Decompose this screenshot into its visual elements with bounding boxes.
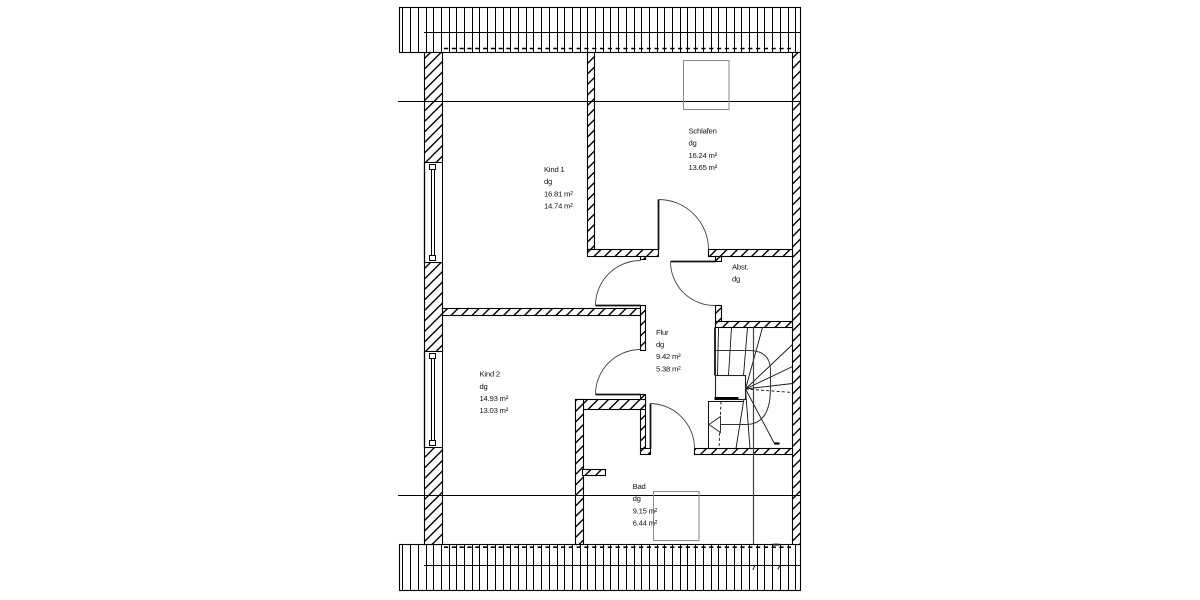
svg-text:dg: dg (689, 139, 697, 148)
svg-text:dg: dg (656, 340, 664, 349)
svg-text:14.93 m²: 14.93 m² (480, 394, 509, 403)
svg-text:dg: dg (732, 275, 740, 284)
svg-text:13.65 m²: 13.65 m² (689, 163, 718, 172)
svg-text:dg: dg (480, 382, 488, 391)
svg-text:14.74 m²: 14.74 m² (544, 202, 573, 211)
svg-text:16.81 m²: 16.81 m² (544, 189, 573, 198)
svg-text:5.38 m²: 5.38 m² (656, 364, 681, 373)
svg-text:Abst.: Abst. (732, 262, 749, 271)
svg-text:9.15 m²: 9.15 m² (633, 506, 658, 515)
svg-text:Kind 2: Kind 2 (480, 370, 500, 379)
svg-text:16.24 m²: 16.24 m² (689, 151, 718, 160)
svg-text:9.42 m²: 9.42 m² (656, 352, 681, 361)
svg-text:Schlafen: Schlafen (689, 126, 717, 135)
svg-text:13.03 m²: 13.03 m² (480, 406, 509, 415)
svg-text:Bad: Bad (633, 482, 646, 491)
svg-text:dg: dg (544, 177, 552, 186)
svg-text:6.44 m²: 6.44 m² (633, 519, 658, 528)
svg-text:dg: dg (633, 494, 641, 503)
svg-text:Flur: Flur (656, 328, 669, 337)
svg-text:Kind 1: Kind 1 (544, 165, 564, 174)
